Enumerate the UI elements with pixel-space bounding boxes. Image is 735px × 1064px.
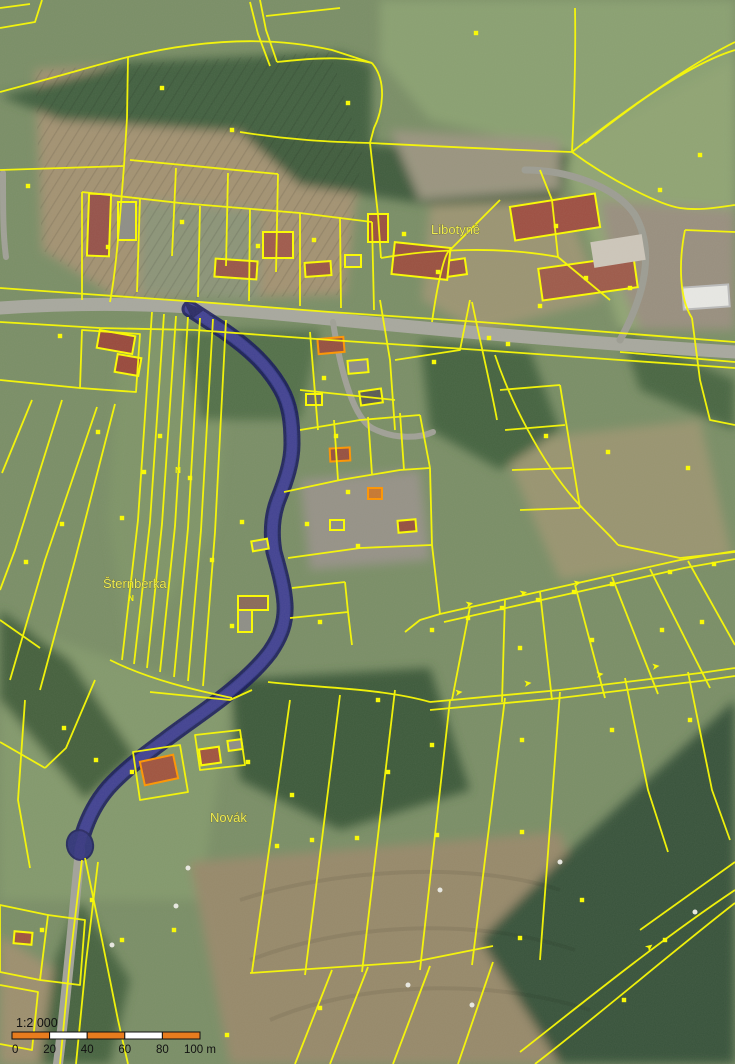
photo-grain-overlay: [0, 0, 735, 1064]
scale-segment: [12, 1032, 50, 1039]
scale-segment: [87, 1032, 125, 1039]
scale-ratio-text: 1:2 000: [16, 1016, 58, 1030]
scale-tick-label: 100 m: [184, 1044, 216, 1056]
scale-tick-label: 60: [118, 1044, 131, 1056]
map-viewport[interactable]: NN ➤➤➤➤➤➤➤➤ LibotyněŠternberkaNovák 1:2 …: [0, 0, 735, 1064]
scale-bar-segments: [12, 1032, 200, 1039]
scale-segment: [50, 1032, 88, 1039]
scale-segment: [162, 1032, 200, 1039]
scale-tick-label: 0: [12, 1044, 18, 1056]
scale-tick-label: 80: [156, 1044, 169, 1056]
scale-tick-label: 20: [43, 1044, 56, 1056]
scale-segment: [125, 1032, 163, 1039]
map-canvas[interactable]: NN ➤➤➤➤➤➤➤➤ LibotyněŠternberkaNovák 1:2 …: [0, 0, 735, 1064]
scale-tick-label: 40: [81, 1044, 94, 1056]
